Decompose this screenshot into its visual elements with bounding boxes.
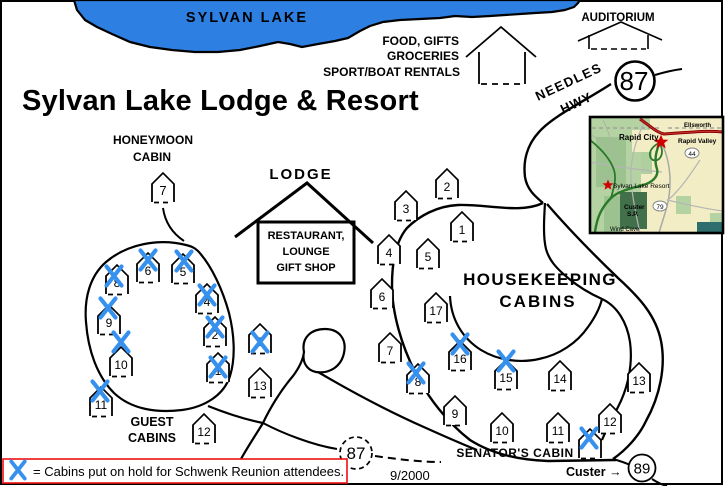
svg-text:LOUNGE: LOUNGE	[282, 246, 329, 258]
svg-text:4: 4	[386, 246, 393, 260]
svg-text:13: 13	[632, 374, 646, 388]
svg-text:87: 87	[620, 66, 649, 96]
svg-text:12: 12	[603, 415, 617, 429]
svg-text:15: 15	[499, 371, 513, 385]
svg-text:89: 89	[634, 461, 651, 478]
svg-text:= Cabins put on hold for Schwe: = Cabins put on hold for Schwenk Reunion…	[33, 464, 344, 479]
svg-text:10: 10	[114, 358, 128, 372]
svg-text:17: 17	[429, 304, 443, 318]
svg-text:HONEYMOON: HONEYMOON	[113, 133, 193, 147]
svg-text:87: 87	[347, 444, 366, 463]
svg-text:LODGE: LODGE	[269, 166, 332, 183]
svg-text:5: 5	[425, 250, 432, 264]
svg-text:FOOD, GIFTS: FOOD, GIFTS	[382, 34, 459, 48]
svg-text:GIFT SHOP: GIFT SHOP	[276, 262, 335, 274]
svg-text:CABINS: CABINS	[499, 292, 576, 311]
svg-text:Sylvan Lake Resort: Sylvan Lake Resort	[613, 183, 670, 190]
svg-text:6: 6	[379, 290, 386, 304]
svg-text:10: 10	[495, 424, 509, 438]
svg-text:14: 14	[553, 372, 567, 386]
svg-text:S.P.: S.P.	[627, 211, 639, 218]
svg-text:3: 3	[403, 202, 410, 216]
svg-text:9/2000: 9/2000	[390, 468, 430, 483]
svg-text:GUEST: GUEST	[130, 415, 173, 429]
svg-text:7: 7	[387, 344, 394, 358]
svg-text:CABINS: CABINS	[128, 431, 176, 445]
svg-text:16: 16	[453, 352, 467, 366]
svg-text:1: 1	[459, 223, 466, 237]
svg-text:SENATOR'S CABIN: SENATOR'S CABIN	[456, 446, 573, 460]
svg-text:CABIN: CABIN	[133, 150, 171, 164]
svg-text:Custer: Custer	[624, 204, 645, 211]
svg-text:Sylvan Lake Lodge & Resort: Sylvan Lake Lodge & Resort	[22, 85, 419, 117]
svg-text:HOUSEKEEPING: HOUSEKEEPING	[463, 270, 617, 289]
svg-text:RESTAURANT,: RESTAURANT,	[268, 230, 345, 242]
svg-text:AUDITORIUM: AUDITORIUM	[581, 12, 654, 24]
svg-text:SYLVAN LAKE: SYLVAN LAKE	[186, 10, 308, 26]
svg-text:Rapid City: Rapid City	[619, 133, 659, 142]
svg-text:9: 9	[106, 316, 113, 330]
svg-text:79: 79	[656, 204, 664, 211]
svg-text:44: 44	[688, 151, 696, 158]
svg-text:GROCERIES: GROCERIES	[387, 49, 459, 63]
svg-text:Ellsworth: Ellsworth	[684, 123, 711, 129]
svg-text:13: 13	[253, 379, 267, 393]
svg-text:9: 9	[452, 407, 459, 421]
svg-text:Rapid Valley: Rapid Valley	[678, 138, 717, 145]
svg-text:2: 2	[444, 180, 451, 194]
svg-text:Custer →: Custer →	[566, 465, 622, 479]
svg-text:SPORT/BOAT RENTALS: SPORT/BOAT RENTALS	[323, 65, 460, 79]
svg-text:7: 7	[159, 183, 166, 198]
svg-text:11: 11	[552, 424, 565, 438]
svg-text:12: 12	[197, 425, 211, 439]
